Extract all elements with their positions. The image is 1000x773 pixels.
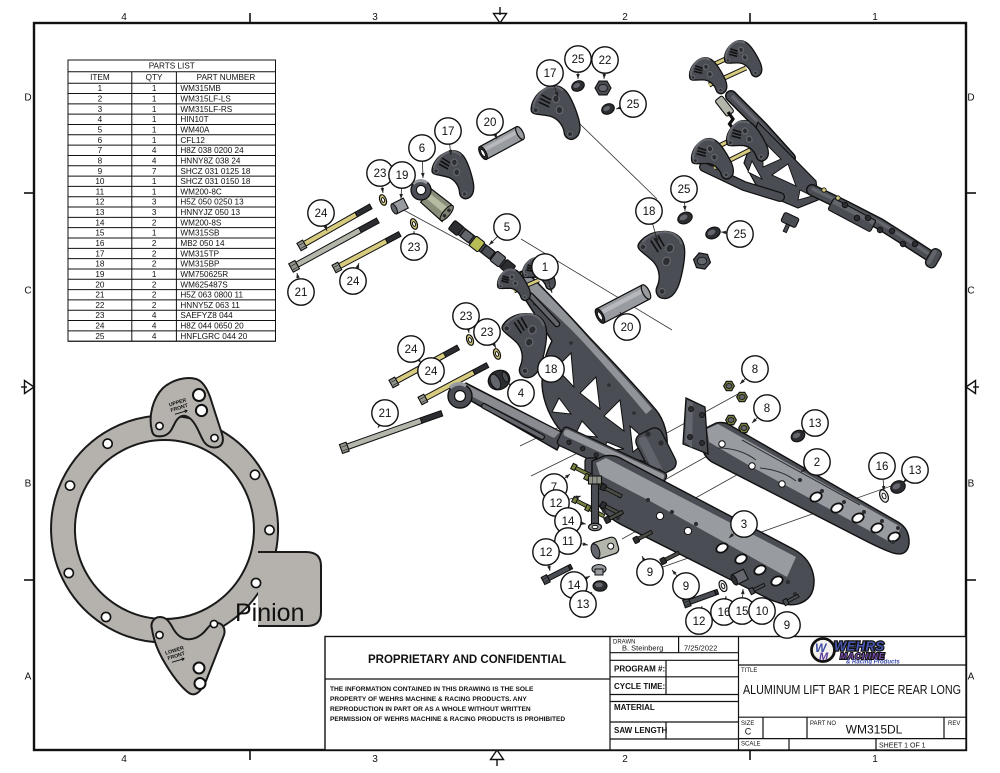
svg-text:HNNYJZ 050 13: HNNYJZ 050 13 <box>180 208 240 217</box>
svg-text:13: 13 <box>809 418 822 430</box>
svg-text:10: 10 <box>756 606 769 618</box>
svg-text:2: 2 <box>814 457 820 469</box>
svg-text:REPRODUCTION IN PART OR AS A W: REPRODUCTION IN PART OR AS A WHOLE WITHO… <box>330 706 531 713</box>
svg-text:12: 12 <box>95 198 105 207</box>
svg-text:& Racing Products: & Racing Products <box>846 660 900 666</box>
svg-text:15: 15 <box>736 606 749 618</box>
svg-text:M: M <box>819 651 829 663</box>
svg-text:21: 21 <box>295 287 308 299</box>
svg-text:CFL12: CFL12 <box>180 136 205 145</box>
svg-text:H5Z 050 0250 13: H5Z 050 0250 13 <box>180 198 244 207</box>
svg-text:3: 3 <box>98 105 103 114</box>
svg-text:PARTS LIST: PARTS LIST <box>149 62 195 71</box>
svg-text:22: 22 <box>599 55 612 67</box>
svg-text:9: 9 <box>683 581 689 593</box>
svg-text:A: A <box>968 672 975 683</box>
svg-text:C: C <box>24 286 31 297</box>
svg-text:4: 4 <box>152 332 157 341</box>
svg-text:THE INFORMATION CONTAINED IN T: THE INFORMATION CONTAINED IN THIS DRAWIN… <box>330 686 534 693</box>
svg-text:2: 2 <box>152 239 157 248</box>
svg-text:WM315DL: WM315DL <box>846 723 903 737</box>
svg-text:WM315MB: WM315MB <box>180 84 221 93</box>
svg-text:2: 2 <box>152 301 157 310</box>
svg-text:HIN10T: HIN10T <box>180 115 208 124</box>
svg-text:2: 2 <box>152 280 157 289</box>
svg-text:11: 11 <box>96 187 105 196</box>
svg-text:SAEFYZ8 044: SAEFYZ8 044 <box>180 311 233 320</box>
svg-text:PART NO: PART NO <box>810 721 836 727</box>
svg-text:10: 10 <box>95 177 105 186</box>
svg-text:14: 14 <box>568 580 581 592</box>
svg-text:WM315LF-LS: WM315LF-LS <box>180 95 231 104</box>
svg-text:1: 1 <box>152 136 157 145</box>
svg-text:7: 7 <box>98 146 103 155</box>
svg-text:2: 2 <box>622 12 628 23</box>
svg-text:20: 20 <box>95 280 105 289</box>
svg-text:3: 3 <box>741 519 747 531</box>
svg-text:11: 11 <box>562 536 574 548</box>
svg-text:WM750625R: WM750625R <box>180 270 228 279</box>
svg-text:21: 21 <box>95 291 105 300</box>
svg-text:1: 1 <box>152 105 157 114</box>
svg-text:24: 24 <box>425 366 438 378</box>
svg-text:B: B <box>25 479 32 490</box>
svg-text:PROGRAM #:: PROGRAM #: <box>614 665 665 674</box>
svg-text:1: 1 <box>872 12 878 23</box>
svg-text:6: 6 <box>98 136 103 145</box>
svg-text:1: 1 <box>542 262 548 274</box>
svg-text:3: 3 <box>372 754 378 765</box>
svg-text:4: 4 <box>121 754 127 765</box>
svg-text:1: 1 <box>152 95 157 104</box>
svg-text:5: 5 <box>504 222 510 234</box>
svg-text:2: 2 <box>152 249 157 258</box>
svg-text:18: 18 <box>95 260 105 269</box>
svg-text:A: A <box>25 672 32 683</box>
svg-text:20: 20 <box>484 117 497 129</box>
svg-text:SHCZ 031 0150 18: SHCZ 031 0150 18 <box>180 177 251 186</box>
svg-text:25: 25 <box>572 54 585 66</box>
svg-text:SHCZ 031 0125 18: SHCZ 031 0125 18 <box>180 167 251 176</box>
svg-text:WM315LF-RS: WM315LF-RS <box>180 105 232 114</box>
svg-text:1: 1 <box>152 84 157 93</box>
svg-text:SAW LENGTH: SAW LENGTH <box>614 726 668 735</box>
svg-text:WM625487S: WM625487S <box>180 280 228 289</box>
svg-text:24: 24 <box>315 208 328 220</box>
svg-text:14: 14 <box>562 516 575 528</box>
svg-text:ALUMINUM LIFT BAR 1 PIECE REAR: ALUMINUM LIFT BAR 1 PIECE REAR LONG <box>743 682 961 697</box>
svg-text:HNNY8Z 038 24: HNNY8Z 038 24 <box>180 156 241 165</box>
svg-text:15: 15 <box>95 229 105 238</box>
svg-text:7: 7 <box>152 167 157 176</box>
svg-text:2: 2 <box>152 260 157 269</box>
svg-text:4: 4 <box>98 115 103 124</box>
svg-text:B: B <box>968 479 975 490</box>
svg-text:25: 25 <box>678 184 691 196</box>
svg-text:MB2 050 14: MB2 050 14 <box>180 239 225 248</box>
svg-text:2: 2 <box>152 218 157 227</box>
svg-text:8: 8 <box>98 156 103 165</box>
svg-text:SCALE: SCALE <box>741 742 761 748</box>
svg-text:2: 2 <box>622 754 628 765</box>
svg-text:4: 4 <box>152 311 157 320</box>
svg-text:1: 1 <box>872 754 878 765</box>
svg-text:23: 23 <box>408 242 421 254</box>
svg-text:17: 17 <box>95 249 105 258</box>
svg-text:3: 3 <box>372 12 378 23</box>
svg-text:24: 24 <box>95 322 105 331</box>
svg-text:CYCLE TIME:: CYCLE TIME: <box>614 682 665 691</box>
svg-text:8: 8 <box>764 403 770 415</box>
svg-text:9: 9 <box>98 167 103 176</box>
svg-text:20: 20 <box>621 322 634 334</box>
svg-text:6: 6 <box>419 143 425 155</box>
svg-text:16: 16 <box>876 461 889 473</box>
svg-text:17: 17 <box>442 126 455 138</box>
svg-text:12: 12 <box>550 498 563 510</box>
svg-text:WM315BP: WM315BP <box>180 260 220 269</box>
svg-text:4: 4 <box>152 156 157 165</box>
svg-text:3: 3 <box>152 198 157 207</box>
svg-text:13: 13 <box>95 208 105 217</box>
svg-text:23: 23 <box>460 311 473 323</box>
svg-text:5: 5 <box>98 125 103 134</box>
svg-text:1: 1 <box>152 125 157 134</box>
svg-text:H5Z 063 0800 11: H5Z 063 0800 11 <box>180 291 243 300</box>
svg-text:WM200-8C: WM200-8C <box>180 187 221 196</box>
svg-text:C: C <box>745 727 752 737</box>
svg-text:13: 13 <box>577 599 590 611</box>
svg-text:9: 9 <box>784 620 790 632</box>
svg-text:WM315TP: WM315TP <box>180 249 219 258</box>
svg-text:8: 8 <box>752 364 758 376</box>
svg-text:1: 1 <box>152 270 157 279</box>
svg-text:24: 24 <box>347 276 360 288</box>
svg-text:4: 4 <box>152 146 157 155</box>
svg-text:23: 23 <box>374 168 387 180</box>
svg-text:25: 25 <box>95 332 105 341</box>
svg-text:12: 12 <box>693 616 706 628</box>
svg-text:WM200-8S: WM200-8S <box>180 218 221 227</box>
svg-text:4: 4 <box>121 12 127 23</box>
svg-text:SHEET 1 OF 1: SHEET 1 OF 1 <box>879 743 926 750</box>
svg-text:23: 23 <box>95 311 105 320</box>
svg-text:WM315SB: WM315SB <box>180 229 220 238</box>
svg-text:1: 1 <box>152 115 157 124</box>
svg-text:1: 1 <box>152 177 157 186</box>
svg-text:D: D <box>967 93 974 104</box>
svg-text:C: C <box>967 286 974 297</box>
svg-text:22: 22 <box>95 301 105 310</box>
svg-text:ITEM: ITEM <box>90 73 110 82</box>
svg-text:PROPRIETARY AND CONFIDENTIAL: PROPRIETARY AND CONFIDENTIAL <box>368 654 566 666</box>
svg-text:REV: REV <box>948 721 960 727</box>
svg-text:9: 9 <box>647 567 653 579</box>
svg-text:13: 13 <box>909 465 922 477</box>
svg-text:HNNY5Z 063 11: HNNY5Z 063 11 <box>180 301 240 310</box>
svg-text:1: 1 <box>98 84 103 93</box>
svg-text:23: 23 <box>481 327 494 339</box>
svg-text:TITLE: TITLE <box>741 668 757 674</box>
svg-text:PERMISSION OF WEHRS MACHINE &: PERMISSION OF WEHRS MACHINE & RACING PRO… <box>330 716 565 723</box>
svg-text:H8Z 044 0650 20: H8Z 044 0650 20 <box>180 322 244 331</box>
svg-text:4: 4 <box>518 388 525 400</box>
svg-text:18: 18 <box>545 364 558 376</box>
svg-text:PART NUMBER: PART NUMBER <box>197 73 256 82</box>
svg-text:Pinion: Pinion <box>235 599 305 627</box>
svg-text:18: 18 <box>643 206 656 218</box>
svg-text:B. Steinberg: B. Steinberg <box>622 644 663 653</box>
svg-text:QTY: QTY <box>146 73 163 82</box>
svg-text:4: 4 <box>152 322 157 331</box>
svg-text:14: 14 <box>95 218 105 227</box>
svg-text:1: 1 <box>152 229 157 238</box>
svg-text:16: 16 <box>95 239 105 248</box>
svg-text:12: 12 <box>540 547 553 559</box>
svg-text:19: 19 <box>396 170 409 182</box>
svg-text:1: 1 <box>152 187 157 196</box>
svg-text:MATERIAL: MATERIAL <box>614 703 655 712</box>
svg-text:17: 17 <box>544 68 557 80</box>
svg-text:7/25/2022: 7/25/2022 <box>684 644 717 653</box>
svg-text:25: 25 <box>627 99 640 111</box>
svg-text:2: 2 <box>98 95 103 104</box>
svg-text:HNFLGRC 044 20: HNFLGRC 044 20 <box>180 332 247 341</box>
svg-text:3: 3 <box>152 208 157 217</box>
svg-text:21: 21 <box>379 408 392 420</box>
svg-text:WM40A: WM40A <box>180 125 210 134</box>
svg-text:25: 25 <box>734 229 747 241</box>
svg-text:24: 24 <box>405 344 418 356</box>
svg-text:2: 2 <box>152 291 157 300</box>
svg-text:PROPERTY OF WEHRS MACHINE & RA: PROPERTY OF WEHRS MACHINE & RACING PRODU… <box>330 696 527 703</box>
svg-text:19: 19 <box>95 270 105 279</box>
svg-text:H8Z 038 0200 24: H8Z 038 0200 24 <box>180 146 244 155</box>
svg-text:D: D <box>24 93 31 104</box>
